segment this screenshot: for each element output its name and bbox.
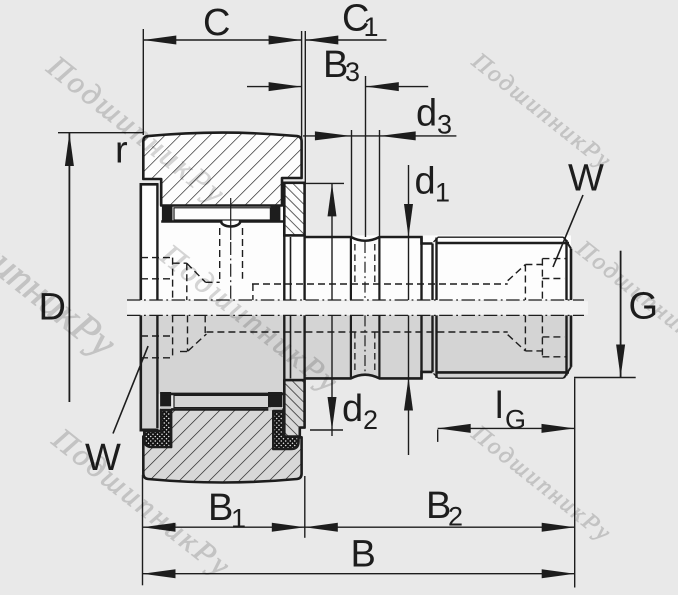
svg-text:l: l — [495, 385, 503, 427]
svg-text:2: 2 — [363, 405, 378, 435]
svg-text:1: 1 — [435, 178, 450, 208]
svg-text:2: 2 — [448, 502, 463, 532]
svg-text:1: 1 — [364, 12, 379, 42]
svg-text:d: d — [342, 388, 363, 430]
svg-text:d: d — [415, 160, 436, 202]
svg-text:C: C — [203, 2, 230, 44]
svg-text:3: 3 — [437, 110, 452, 140]
svg-text:3: 3 — [345, 57, 360, 87]
svg-text:B: B — [351, 534, 376, 576]
svg-text:G: G — [505, 404, 526, 434]
svg-text:B: B — [208, 487, 233, 529]
svg-text:1: 1 — [231, 504, 246, 534]
svg-text:d: d — [416, 92, 437, 134]
